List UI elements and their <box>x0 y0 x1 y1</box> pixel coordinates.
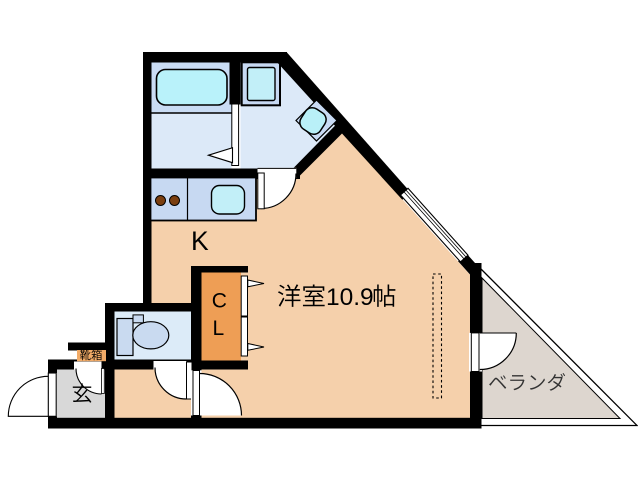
svg-text:L: L <box>213 317 225 340</box>
svg-text:10.9: 10.9 <box>326 284 374 311</box>
svg-text:K: K <box>191 226 209 256</box>
svg-text:C: C <box>212 290 227 313</box>
